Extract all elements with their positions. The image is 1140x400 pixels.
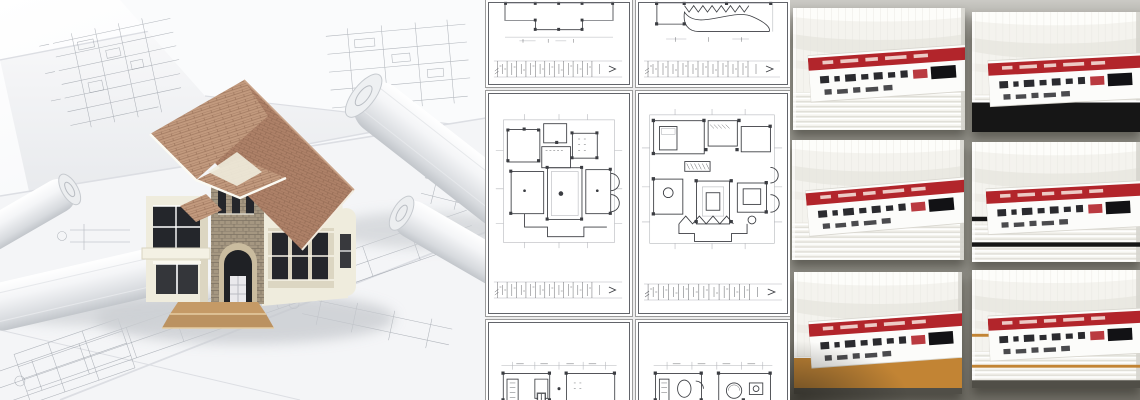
bottom-shadow	[972, 380, 1140, 388]
floorplan-sheet-bottom-right	[636, 320, 790, 400]
floorplan-sheet-mid-left	[486, 91, 632, 316]
product-label	[988, 52, 1140, 107]
black-band	[972, 102, 1140, 132]
floorplan-sheet-mid-right	[636, 91, 790, 316]
architecture-collage	[0, 0, 1140, 400]
moulding-sample-bottom-left	[794, 272, 962, 394]
front-steps	[162, 302, 274, 328]
moulding-sample-top-right	[972, 12, 1140, 132]
house-blueprints-photo	[0, 0, 486, 400]
product-label	[986, 180, 1140, 235]
black-pinstripe	[972, 242, 1140, 246]
floorplan-sheet-top-left	[486, 0, 632, 87]
moulding-sample-middle-right	[972, 142, 1140, 262]
gold-pinstripe	[972, 365, 1140, 368]
house-blueprints-illustration	[0, 0, 486, 400]
moulding-samples-photo	[790, 0, 1140, 400]
balcony-rail	[142, 248, 210, 259]
bottom-shadow	[794, 388, 962, 394]
moulding-sample-bottom-right	[972, 270, 1140, 388]
floorplan-sheet-bottom-left	[486, 320, 632, 400]
floorplan-sheet-grid	[486, 0, 790, 400]
moulding-sample-top-left	[793, 8, 965, 130]
gold-band	[794, 358, 962, 388]
product-label	[988, 307, 1140, 361]
floorplan-sheet-top-right	[636, 0, 790, 87]
moulding-sample-middle-left	[792, 140, 964, 260]
